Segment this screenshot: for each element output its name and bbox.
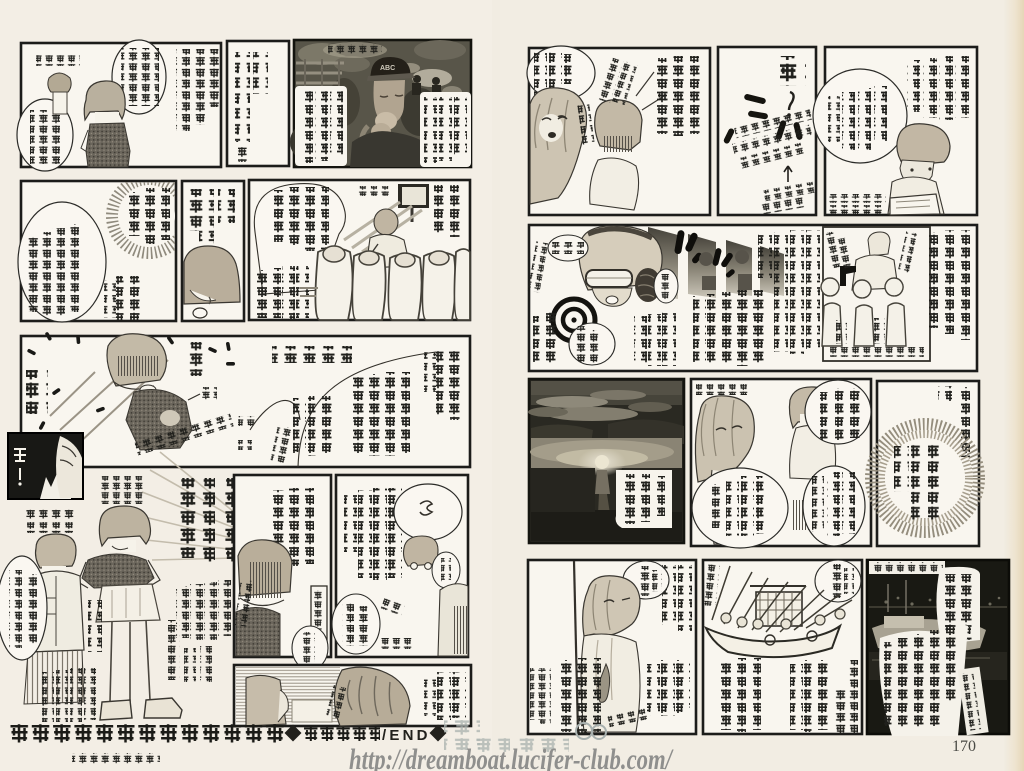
svg-text:ABC: ABC <box>380 65 395 72</box>
svg-text:170: 170 <box>952 738 976 755</box>
svg-text:http://dreamboat.lucifer-club.: http://dreamboat.lucifer-club.com/ <box>349 743 674 771</box>
svg-text:/END: /END <box>382 727 431 744</box>
